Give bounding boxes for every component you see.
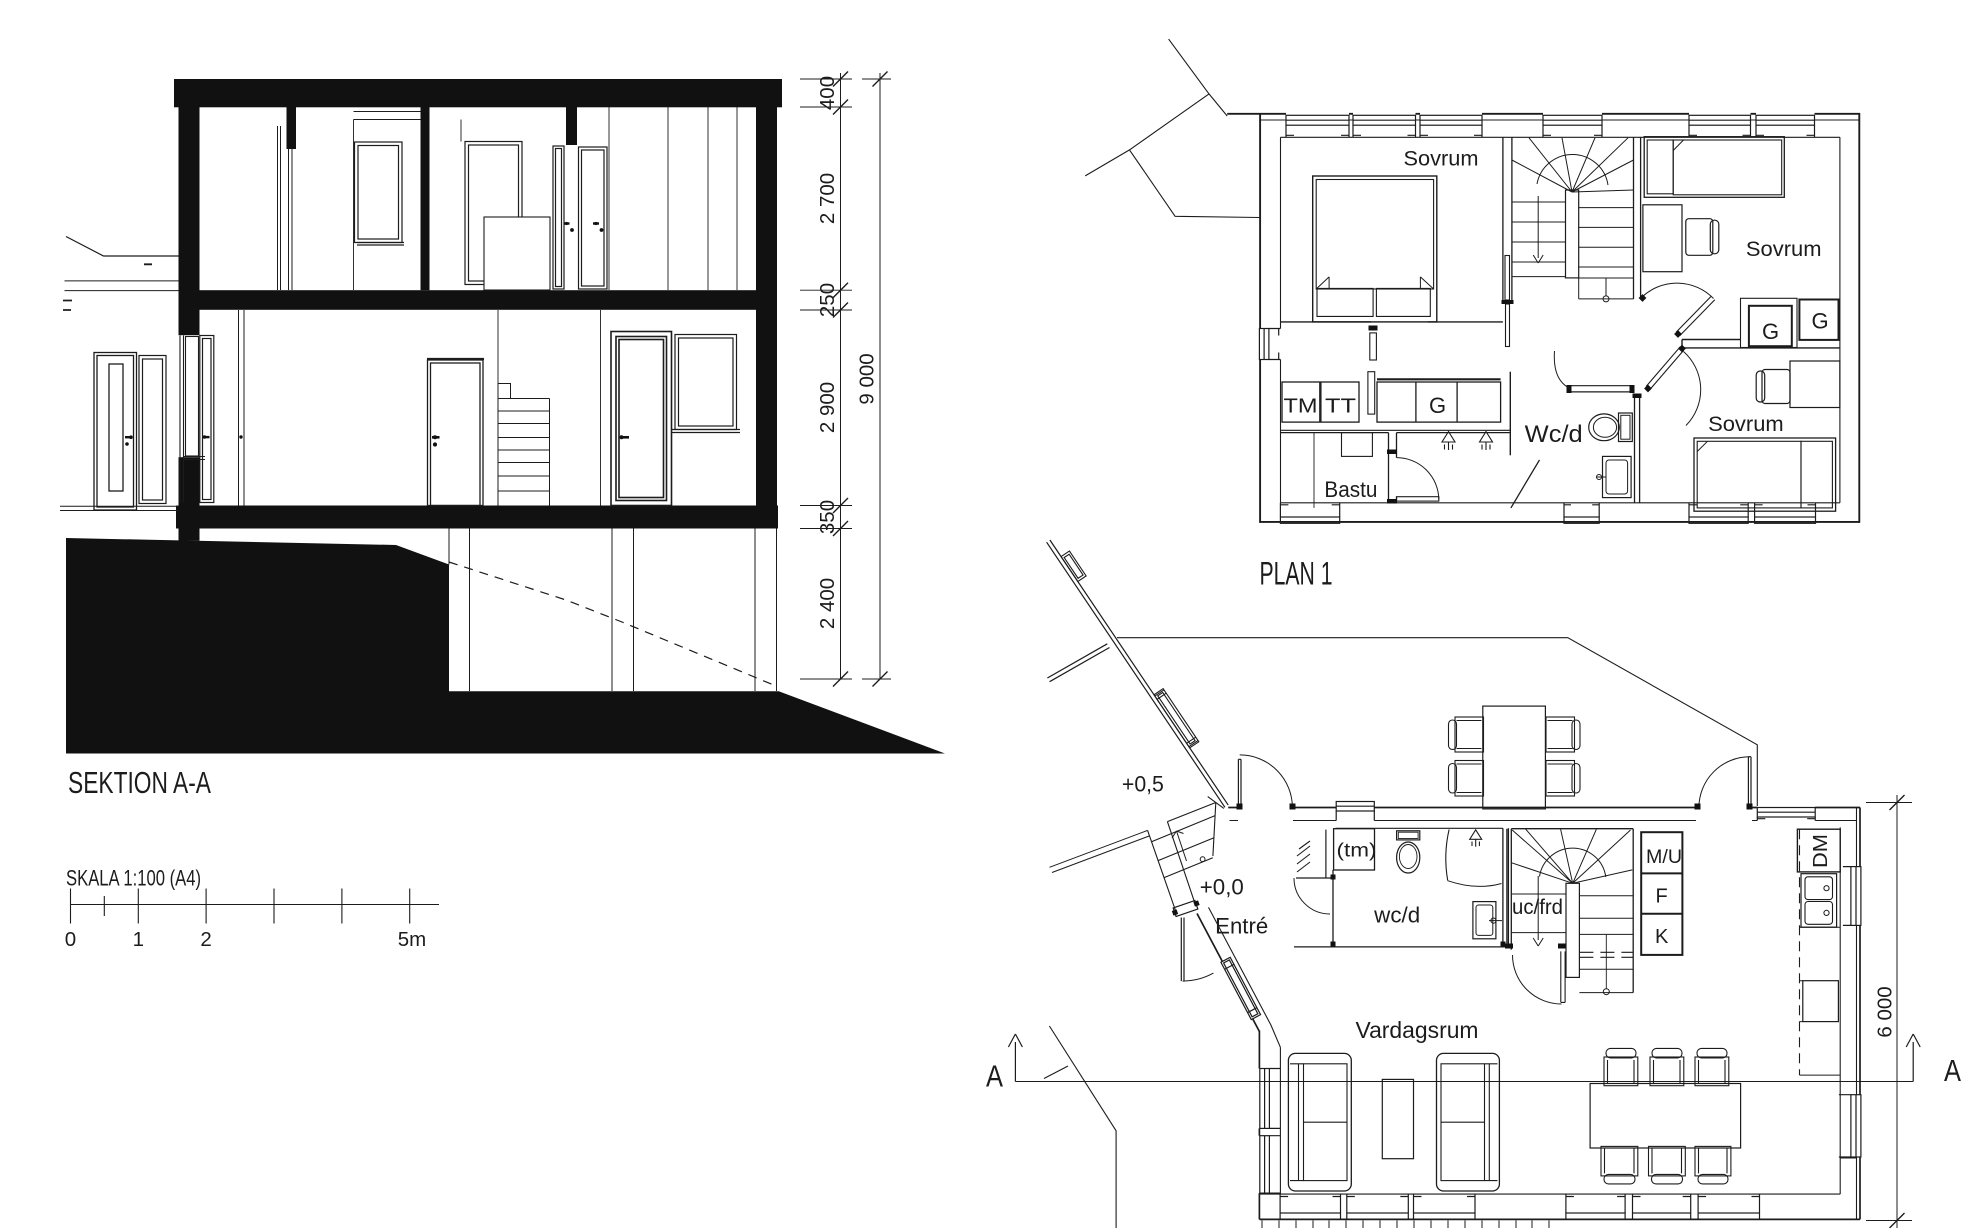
svg-text:Entré: Entré	[1215, 914, 1268, 939]
svg-text:DM: DM	[1810, 834, 1832, 868]
svg-text:uc/frd: uc/frd	[1512, 896, 1563, 919]
svg-text:Sovrum: Sovrum	[1404, 147, 1479, 171]
svg-text:M/U: M/U	[1646, 847, 1682, 868]
svg-text:SEKTION A-A: SEKTION A-A	[68, 765, 211, 800]
svg-text:2 900: 2 900	[816, 382, 839, 433]
svg-text:PLAN 1: PLAN 1	[1260, 556, 1333, 592]
svg-text:A: A	[986, 1059, 1003, 1094]
svg-text:TM: TM	[1284, 396, 1318, 418]
svg-text:Bastu: Bastu	[1324, 477, 1377, 502]
svg-text:(tm): (tm)	[1337, 841, 1377, 862]
svg-text:TT: TT	[1325, 396, 1356, 418]
svg-text:6 000: 6 000	[1874, 986, 1897, 1037]
svg-text:SKALA 1:100 (A4): SKALA 1:100 (A4)	[66, 866, 201, 891]
svg-text:350: 350	[816, 500, 839, 534]
svg-text:Sovrum: Sovrum	[1746, 237, 1822, 261]
svg-text:2: 2	[200, 928, 211, 951]
svg-text:5m: 5m	[398, 928, 426, 951]
svg-text:2 400: 2 400	[816, 578, 839, 629]
svg-text:Vardagsrum: Vardagsrum	[1356, 1017, 1479, 1043]
svg-text:250: 250	[816, 283, 839, 317]
svg-text:wc/d: wc/d	[1373, 903, 1420, 928]
svg-text:K: K	[1655, 926, 1669, 948]
svg-text:0: 0	[65, 928, 76, 951]
svg-text:Wc/d: Wc/d	[1525, 421, 1583, 448]
svg-text:F: F	[1656, 886, 1668, 908]
svg-text:Sovrum: Sovrum	[1708, 412, 1784, 436]
svg-text:A: A	[1944, 1053, 1961, 1088]
svg-text:G: G	[1812, 309, 1829, 334]
svg-text:+0,5: +0,5	[1122, 772, 1164, 797]
svg-text:2 700: 2 700	[816, 173, 839, 224]
svg-text:G: G	[1429, 393, 1446, 418]
svg-text:9 000: 9 000	[856, 353, 879, 404]
svg-text:400: 400	[816, 76, 839, 110]
svg-text:G: G	[1762, 319, 1779, 344]
svg-text:+0,0: +0,0	[1200, 875, 1244, 900]
svg-text:1: 1	[133, 928, 144, 951]
